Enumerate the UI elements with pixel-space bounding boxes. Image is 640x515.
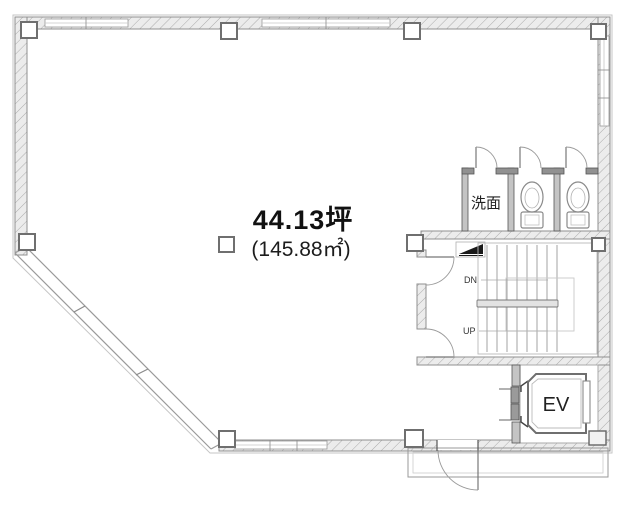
shaft-corner-box	[589, 431, 606, 445]
area-tsubo: 44.13坪	[253, 205, 354, 235]
washroom-label: 洗面	[471, 195, 501, 212]
stair-down-label: DN	[464, 275, 477, 285]
floor-plan-drawing: 洗面	[0, 0, 640, 515]
diagonal-window-wall	[15, 247, 222, 449]
window-top-left	[45, 17, 128, 29]
main-area-label: 44.13坪 (145.88㎡)	[251, 205, 353, 261]
stair-hall-doors	[426, 257, 454, 357]
floor-plan: 洗面	[0, 0, 640, 515]
washroom-doors	[476, 147, 587, 168]
washroom-block: 洗面	[462, 147, 598, 231]
freestanding-column	[219, 237, 234, 252]
elevator: EV	[499, 365, 606, 445]
window-bottom	[235, 440, 327, 451]
stair-up-label: UP	[463, 326, 476, 336]
window-right	[598, 36, 610, 126]
elevator-counterweight	[583, 381, 590, 423]
elevator-shaft-walls	[511, 365, 520, 443]
staircase	[477, 243, 597, 354]
elevator-label: EV	[543, 394, 570, 416]
stair-hall: DN UP	[426, 242, 597, 357]
stair-direction-marker	[456, 242, 485, 257]
toilet-icon	[521, 182, 543, 228]
area-sqm: (145.88㎡)	[251, 237, 350, 261]
toilet-icon	[567, 182, 589, 228]
entrance-porch	[408, 440, 608, 490]
stair-handrail	[477, 300, 558, 307]
core-walls	[417, 231, 610, 365]
window-top-center	[262, 17, 390, 29]
